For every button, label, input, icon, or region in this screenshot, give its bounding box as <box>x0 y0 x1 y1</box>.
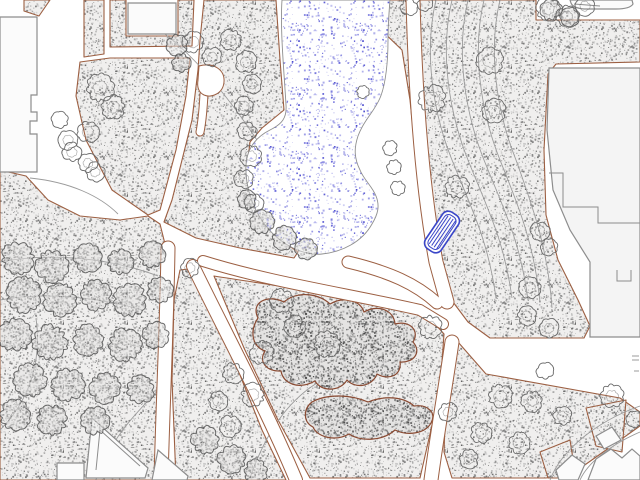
tree-inner-detail <box>67 147 77 157</box>
tree-outline <box>536 362 554 379</box>
building-north-block <box>128 3 176 34</box>
site-plan-canvas <box>0 0 640 480</box>
tree-canopy-symbol <box>107 249 134 275</box>
tree-symbol <box>58 131 78 151</box>
cad-viewport[interactable] <box>0 0 640 480</box>
tree-canopy-symbol <box>237 190 256 210</box>
ground-area-strip-top-left-vertical <box>84 0 104 57</box>
tree-outline <box>58 131 78 151</box>
ground-area-strip-top-left-corner <box>24 0 50 16</box>
tree-symbol <box>383 141 397 156</box>
tree-symbol <box>62 142 82 161</box>
building-northwest <box>0 17 37 172</box>
tree-inner-detail <box>63 135 73 145</box>
tree-outline <box>387 160 402 175</box>
tree-symbol <box>51 111 68 128</box>
tree-outline <box>51 111 68 128</box>
building-south-small <box>57 463 84 480</box>
tree-canopy-symbol <box>2 242 35 275</box>
tree-inner-detail <box>83 158 93 168</box>
contour-line-14 <box>632 356 639 371</box>
path-bulb-stem <box>200 94 204 132</box>
tree-outline <box>383 141 397 156</box>
tree-outline <box>390 181 405 196</box>
tree-symbol <box>387 160 402 175</box>
tree-outline <box>78 153 98 172</box>
tree-symbol <box>78 153 98 172</box>
tree-outline <box>62 142 82 161</box>
tree-symbol <box>536 362 554 379</box>
tree-symbol <box>390 181 405 196</box>
tree-canopy-symbol <box>113 283 146 316</box>
path-bulb <box>198 65 224 96</box>
ground-area-wedge-west-of-pond <box>76 58 190 215</box>
